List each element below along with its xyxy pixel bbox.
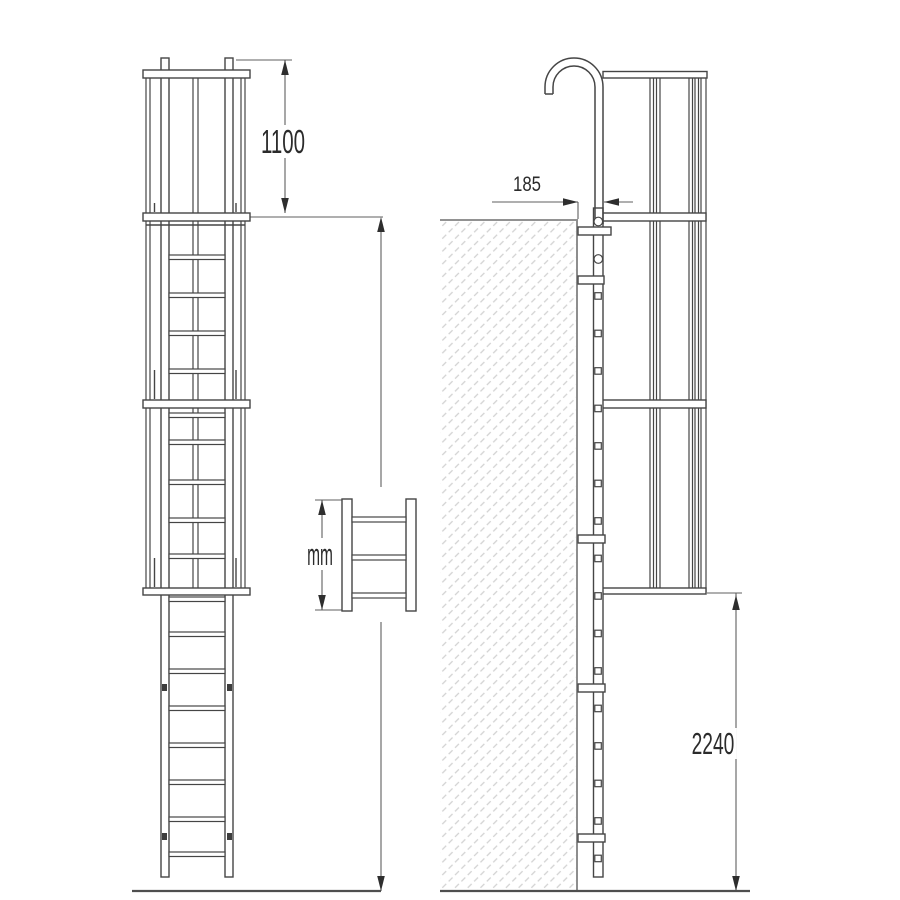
dimension-label-mm: mm bbox=[305, 539, 335, 570]
ladder-rung bbox=[169, 440, 225, 445]
rung-detail-view bbox=[342, 499, 416, 611]
dimension-arrow bbox=[318, 500, 326, 515]
bracket-mark bbox=[227, 684, 232, 691]
cage-hoop-band bbox=[143, 213, 250, 221]
cage-hoop-band bbox=[143, 588, 250, 595]
rung-socket bbox=[595, 780, 602, 787]
rung-socket bbox=[595, 630, 602, 637]
dimension-arrow bbox=[732, 876, 740, 891]
wall-section bbox=[440, 220, 578, 891]
rung-socket bbox=[595, 555, 602, 562]
cage-vertical-bar bbox=[650, 76, 654, 592]
rung-socket bbox=[595, 443, 602, 450]
rung-socket bbox=[595, 818, 602, 825]
cage-ladder-drawing bbox=[0, 0, 900, 900]
cage-top-rail bbox=[603, 72, 707, 79]
dimension-arrow bbox=[377, 876, 385, 891]
ladder-rung bbox=[169, 852, 225, 857]
technical-drawing-page: 1100 185 mm 2240 bbox=[0, 0, 900, 900]
rung-socket bbox=[595, 855, 602, 862]
ladder-rung bbox=[169, 331, 225, 336]
rung-socket bbox=[595, 705, 602, 712]
dimension-arrow bbox=[732, 595, 740, 610]
front-view bbox=[143, 58, 250, 877]
dimension-label-1100: 1100 bbox=[258, 125, 308, 158]
cage-hoop-band bbox=[595, 400, 706, 408]
cage-hoop-band bbox=[143, 400, 250, 408]
ladder-rung bbox=[169, 669, 225, 674]
detail-rung bbox=[352, 593, 406, 598]
ladder-rung bbox=[169, 597, 225, 602]
ladder-rung bbox=[169, 706, 225, 711]
cage-vertical-bar bbox=[146, 74, 150, 592]
dimension-arrow bbox=[604, 198, 619, 206]
dimension-arrow bbox=[563, 198, 578, 206]
dimension-arrow bbox=[318, 595, 326, 610]
cage-vertical-bar bbox=[657, 76, 661, 592]
ladder-rung bbox=[169, 255, 225, 260]
ladder-rung bbox=[169, 632, 225, 637]
rung-socket bbox=[595, 480, 602, 487]
ladder-rung bbox=[169, 480, 225, 485]
ladder-stile bbox=[225, 58, 233, 877]
rung-socket bbox=[595, 593, 602, 600]
ladder-rung bbox=[169, 518, 225, 523]
rung-socket bbox=[595, 668, 602, 675]
ladder-rung bbox=[169, 817, 225, 822]
detail-stile bbox=[406, 499, 416, 611]
wall-hatch bbox=[440, 220, 577, 891]
wall-mounting-bracket bbox=[578, 535, 605, 543]
ladder-rung bbox=[169, 780, 225, 785]
detail-stile bbox=[342, 499, 352, 611]
cage-vertical-bar bbox=[695, 76, 699, 592]
dimension-arrow bbox=[377, 217, 385, 232]
hook-clamp-bolt bbox=[594, 217, 603, 226]
bracket-mark bbox=[227, 833, 232, 840]
cage-hoop-band bbox=[143, 70, 250, 78]
detail-rung bbox=[352, 555, 406, 560]
cage-hoop-band bbox=[595, 588, 706, 594]
dimension-arrow bbox=[281, 198, 289, 213]
rung-socket bbox=[595, 368, 602, 375]
detail-rung bbox=[352, 517, 406, 522]
wall-mounting-bracket bbox=[578, 684, 605, 692]
hook-clamp-bolt bbox=[594, 255, 603, 264]
rung-socket bbox=[595, 518, 602, 525]
ladder-rung bbox=[169, 413, 225, 418]
bracket-mark bbox=[162, 833, 167, 840]
bracket-mark bbox=[162, 684, 167, 691]
ladder-rung bbox=[169, 369, 225, 374]
cage-vertical-bar bbox=[241, 74, 245, 592]
rung-socket bbox=[595, 743, 602, 750]
wall-mounting-bracket bbox=[578, 834, 605, 842]
dimension-label-2240: 2240 bbox=[689, 728, 736, 759]
rung-socket bbox=[595, 293, 602, 300]
ladder-rung bbox=[169, 293, 225, 298]
cage-vertical-bar bbox=[701, 76, 706, 592]
rung-socket bbox=[595, 330, 602, 337]
rung-socket bbox=[595, 405, 602, 412]
cage-vertical-bar bbox=[689, 76, 693, 592]
cage-hoop-band bbox=[595, 213, 706, 221]
ladder-rung bbox=[169, 554, 225, 559]
dimension-label-185: 185 bbox=[509, 174, 544, 195]
dimension-arrow bbox=[281, 60, 289, 75]
ladder-stile bbox=[161, 58, 169, 877]
walkthrough-hook-rail bbox=[545, 58, 603, 224]
ladder-rung bbox=[169, 743, 225, 748]
wall-mounting-bracket bbox=[578, 227, 611, 235]
wall-mounting-bracket bbox=[578, 276, 604, 284]
